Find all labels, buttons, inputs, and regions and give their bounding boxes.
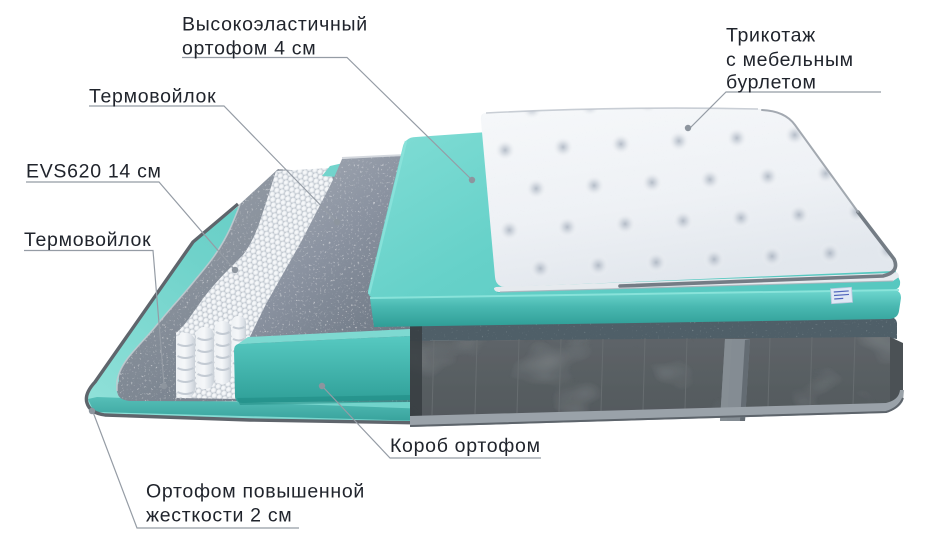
svg-text:EVS620 14 см: EVS620 14 см	[26, 161, 162, 183]
svg-text:Термовойлок: Термовойлок	[89, 86, 216, 108]
svg-text:ортофом 4 см: ортофом 4 см	[182, 38, 316, 60]
svg-text:Термовойлок: Термовойлок	[24, 229, 151, 251]
svg-text:Высокоэластичный: Высокоэластичный	[182, 14, 368, 36]
svg-text:Ортофом повышенной: Ортофом повышенной	[146, 481, 365, 503]
svg-text:жесткости 2 см: жесткости 2 см	[146, 505, 292, 527]
svg-text:с мебельным: с мебельным	[726, 49, 854, 71]
svg-text:Короб ортофом: Короб ортофом	[390, 435, 541, 457]
svg-text:бурлетом: бурлетом	[726, 72, 817, 94]
svg-text:Трикотаж: Трикотаж	[726, 25, 816, 47]
